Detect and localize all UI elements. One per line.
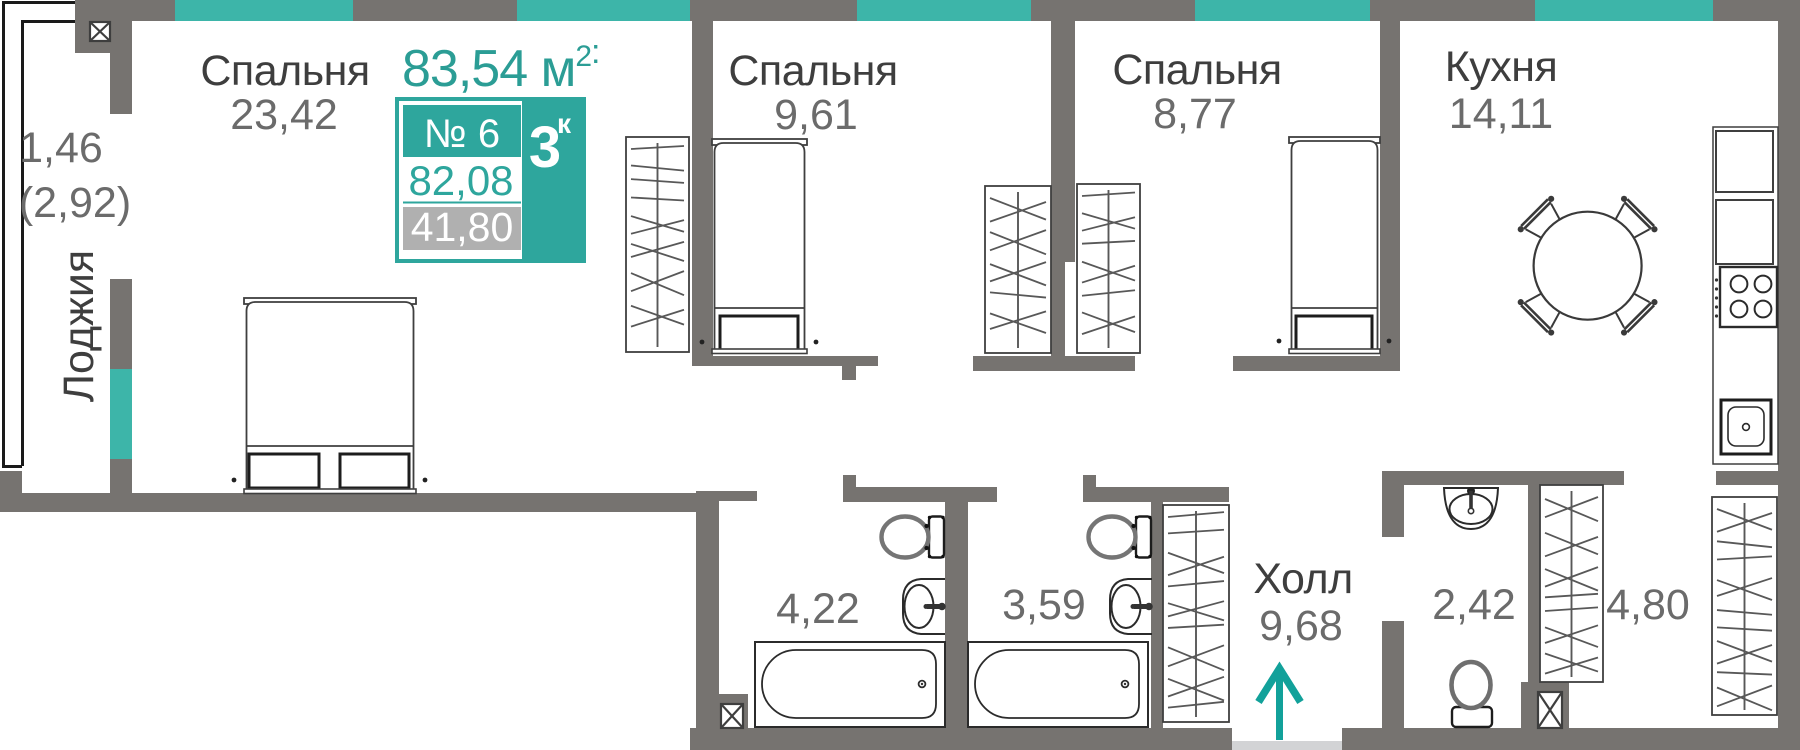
svg-text:Холл: Холл: [1253, 555, 1352, 603]
svg-text:Спальня: Спальня: [728, 47, 897, 95]
svg-text:23,42: 23,42: [230, 91, 338, 139]
svg-text:4,80: 4,80: [1606, 581, 1690, 629]
svg-text:Спальня: Спальня: [200, 47, 369, 95]
svg-text:3,59: 3,59: [1002, 581, 1086, 629]
svg-text:(2,92): (2,92): [19, 179, 131, 227]
svg-text::: :: [591, 33, 600, 71]
svg-text:1,46: 1,46: [19, 124, 103, 172]
svg-text:9,61: 9,61: [774, 91, 858, 139]
svg-text:82,08: 82,08: [408, 157, 513, 204]
svg-text:83,54 м2: 83,54 м2: [402, 40, 591, 98]
svg-text:8,77: 8,77: [1153, 90, 1237, 138]
svg-text:Лоджия: Лоджия: [55, 250, 103, 402]
svg-text:41,80: 41,80: [411, 204, 514, 250]
svg-text:9,68: 9,68: [1259, 602, 1343, 650]
svg-text:2,42: 2,42: [1432, 581, 1516, 629]
svg-text:№ 6: № 6: [424, 112, 500, 156]
svg-text:Кухня: Кухня: [1445, 43, 1558, 91]
svg-text:4,22: 4,22: [776, 585, 860, 633]
svg-text:14,11: 14,11: [1449, 90, 1553, 138]
svg-text:Спальня: Спальня: [1112, 46, 1281, 94]
svg-text:к: к: [557, 108, 572, 139]
